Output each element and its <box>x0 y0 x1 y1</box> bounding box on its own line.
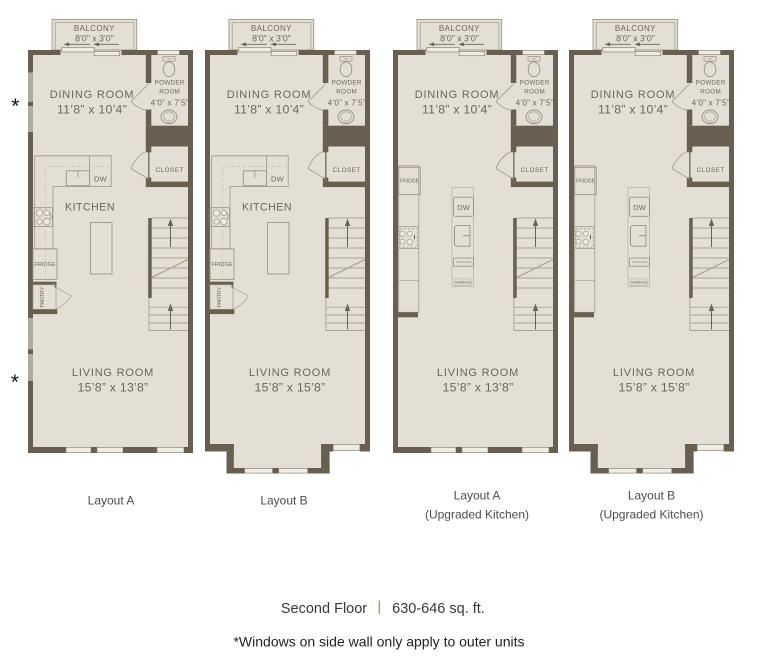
svg-text:15’8” x 15’8”: 15’8” x 15’8” <box>619 381 690 395</box>
svg-text:DINING ROOM: DINING ROOM <box>50 89 135 101</box>
svg-text:(Upgraded Kitchen): (Upgraded Kitchen) <box>425 508 529 522</box>
svg-text:11’8” x 10’4”: 11’8” x 10’4” <box>598 103 668 117</box>
svg-text:CLOSET: CLOSET <box>156 167 184 174</box>
svg-text:ROOM: ROOM <box>159 89 180 96</box>
svg-text:FRIDGE: FRIDGE <box>211 262 232 268</box>
svg-text:PANTRY: PANTRY <box>40 286 46 307</box>
svg-text:Layout A: Layout A <box>454 489 501 503</box>
svg-text:Layout B: Layout B <box>628 489 675 503</box>
svg-text:GARBAGE: GARBAGE <box>631 281 649 285</box>
svg-text:POWDER: POWDER <box>332 79 362 86</box>
svg-text:DINING ROOM: DINING ROOM <box>591 89 676 101</box>
svg-text:(Upgraded Kitchen): (Upgraded Kitchen) <box>599 508 703 522</box>
svg-text:CLOSET: CLOSET <box>697 167 725 174</box>
svg-text:LIVING ROOM: LIVING ROOM <box>72 367 154 379</box>
svg-text:Layout B: Layout B <box>260 494 307 508</box>
svg-text:8’0” x 3’0”: 8’0” x 3’0” <box>616 33 655 43</box>
svg-text:BALCONY: BALCONY <box>251 24 292 33</box>
svg-text:DW: DW <box>633 203 646 212</box>
svg-text:DW: DW <box>457 203 470 212</box>
svg-text:15’8” x 13’8”: 15’8” x 13’8” <box>443 381 514 395</box>
svg-text:KITCHEN: KITCHEN <box>65 201 115 213</box>
svg-text:*: * <box>11 95 19 118</box>
svg-text:15’8” x 15’8”: 15’8” x 15’8” <box>255 381 326 395</box>
svg-text:*: * <box>11 371 19 394</box>
svg-text:BALCONY: BALCONY <box>74 24 115 33</box>
svg-text:8’0” x 3’0”: 8’0” x 3’0” <box>75 33 114 43</box>
svg-text:8’0” x 3’0”: 8’0” x 3’0” <box>252 33 291 43</box>
svg-text:POWDER: POWDER <box>520 79 550 86</box>
svg-text:4’0” x 7’5”: 4’0” x 7’5” <box>328 99 366 108</box>
svg-text:BALCONY: BALCONY <box>439 24 480 33</box>
svg-text:POWDER: POWDER <box>696 79 726 86</box>
svg-text:LIVING ROOM: LIVING ROOM <box>613 367 695 379</box>
svg-text:8’0” x 3’0”: 8’0” x 3’0” <box>440 33 479 43</box>
svg-text:BALCONY: BALCONY <box>615 24 656 33</box>
svg-text:Second Floor: Second Floor <box>281 601 367 617</box>
svg-text:LIVING ROOM: LIVING ROOM <box>437 367 519 379</box>
svg-text:4’0” x 7’5”: 4’0” x 7’5” <box>692 99 730 108</box>
svg-text:GARBAGE: GARBAGE <box>455 281 473 285</box>
svg-text:FRIDGE: FRIDGE <box>400 179 420 185</box>
svg-text:11’8” x 10’4”: 11’8” x 10’4” <box>422 103 492 117</box>
svg-text:DINING ROOM: DINING ROOM <box>227 89 312 101</box>
svg-text:15’8” x 13’8”: 15’8” x 13’8” <box>78 381 149 395</box>
svg-text:630-646 sq. ft.: 630-646 sq. ft. <box>392 601 485 617</box>
svg-text:ROOM: ROOM <box>336 89 357 96</box>
svg-text:FRIDGE: FRIDGE <box>576 179 596 185</box>
svg-text:4’0” x 7’5”: 4’0” x 7’5” <box>151 99 189 108</box>
svg-text:LIVING ROOM: LIVING ROOM <box>249 367 331 379</box>
svg-text:11’8” x 10’4”: 11’8” x 10’4” <box>57 103 127 117</box>
svg-text:CLOSET: CLOSET <box>521 167 549 174</box>
svg-text:POWDER: POWDER <box>155 79 185 86</box>
svg-text:PANTRY: PANTRY <box>217 286 223 307</box>
svg-text:DW: DW <box>271 175 284 184</box>
svg-text:Layout A: Layout A <box>88 494 135 508</box>
svg-text:FRIDGE: FRIDGE <box>34 262 55 268</box>
svg-text:ROOM: ROOM <box>524 89 545 96</box>
svg-text:*Windows on side wall only app: *Windows on side wall only apply to oute… <box>233 634 524 650</box>
svg-text:KITCHEN: KITCHEN <box>242 201 292 213</box>
svg-text:4’0” x 7’5”: 4’0” x 7’5” <box>516 99 554 108</box>
svg-text:CLOSET: CLOSET <box>333 167 361 174</box>
svg-text:DINING ROOM: DINING ROOM <box>415 89 500 101</box>
svg-text:ROOM: ROOM <box>700 89 721 96</box>
svg-text:DW: DW <box>94 175 107 184</box>
svg-text:11’8” x 10’4”: 11’8” x 10’4” <box>234 103 304 117</box>
